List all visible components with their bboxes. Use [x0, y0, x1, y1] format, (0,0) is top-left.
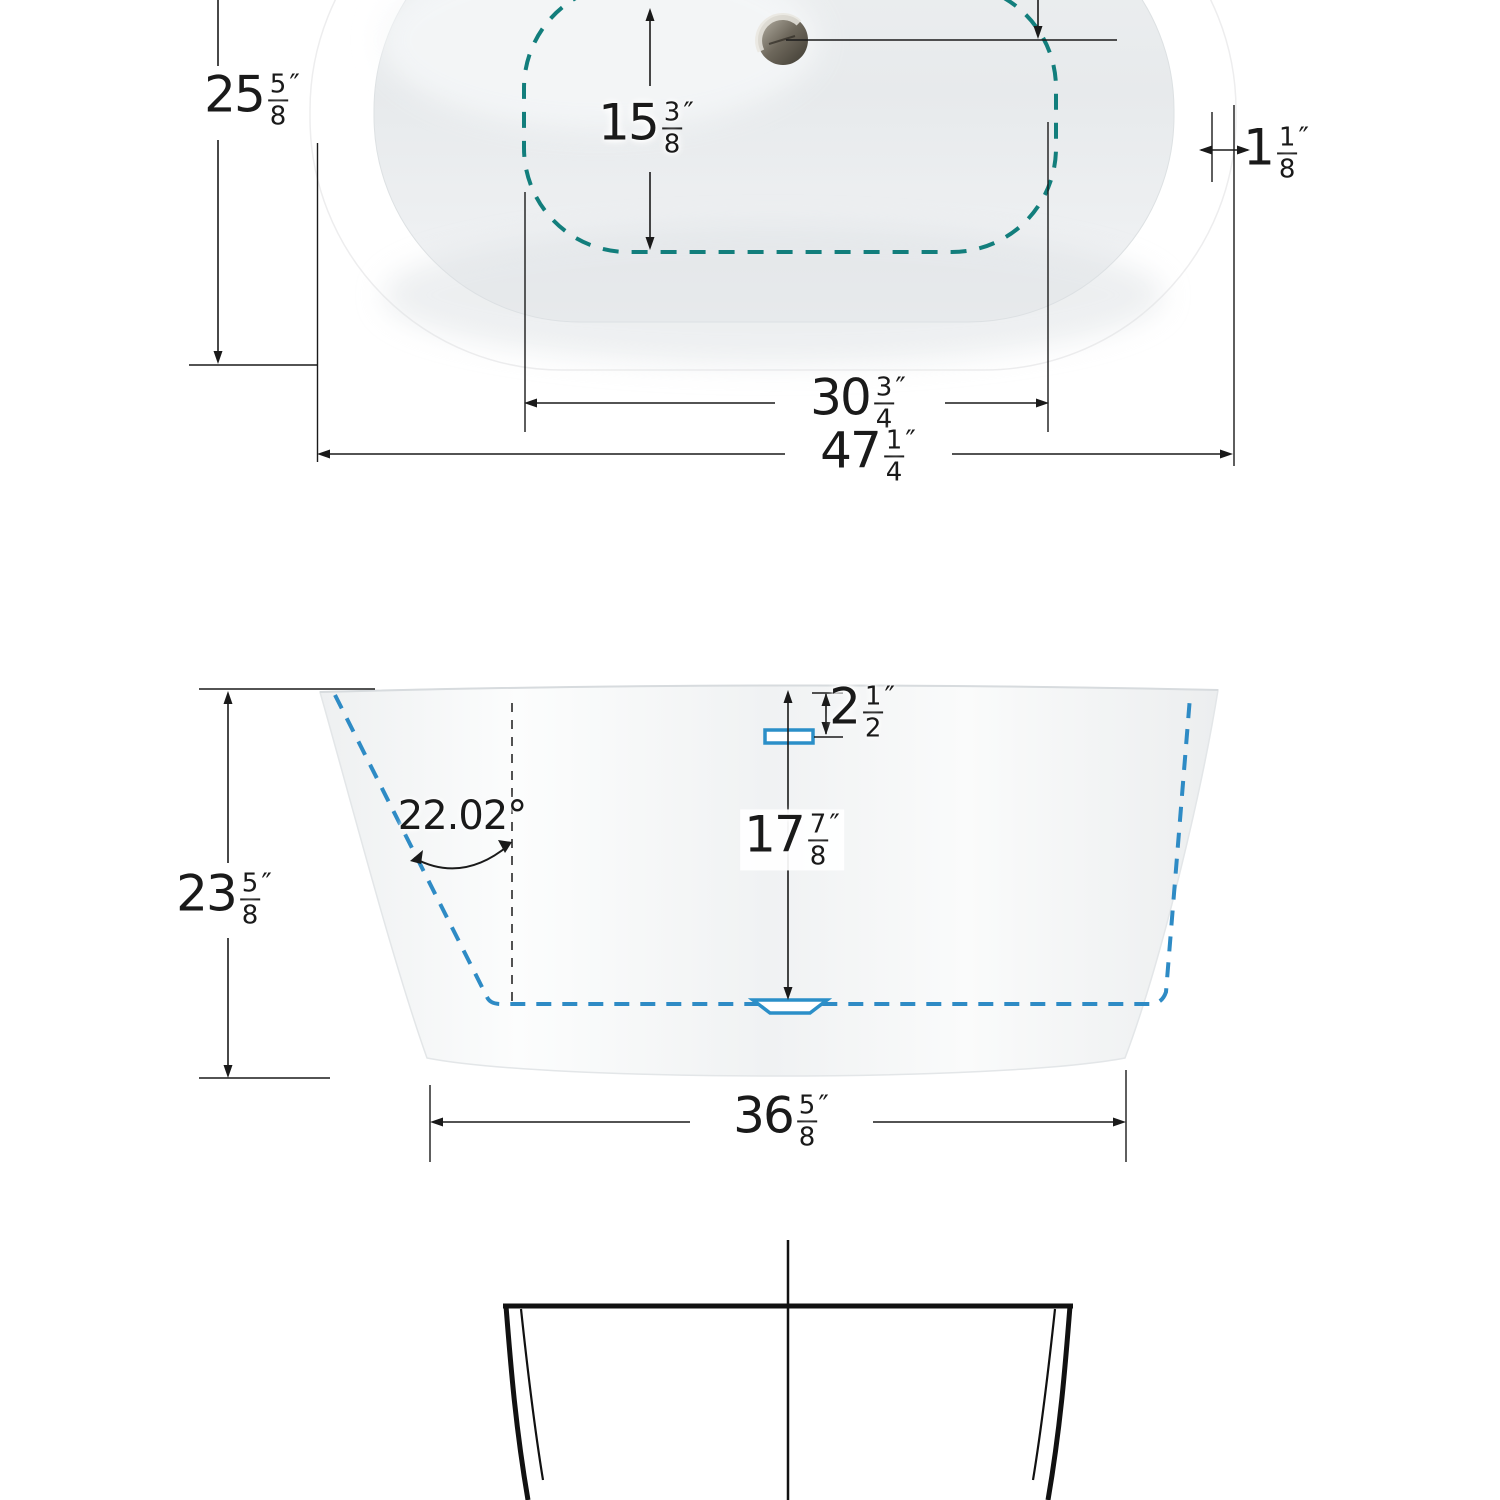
inch-mark: ″: [829, 810, 839, 838]
dim-fraction: 58: [240, 869, 261, 929]
dim-label-basin-width: 15 38 ″: [598, 97, 694, 158]
dim-whole: 23: [176, 868, 236, 918]
dim-whole: 25: [204, 69, 264, 119]
dim-fraction: 78: [808, 810, 829, 870]
dim-label-base-length: 36 58 ″: [733, 1090, 829, 1151]
inch-mark: ″: [683, 98, 693, 126]
arrowhead: [224, 691, 233, 704]
overflow-icon: [765, 730, 813, 743]
bathtub-dimension-diagram: 25 58 ″ 15 38 ″ 1 18 ″ 30 34 ″ 47 14 ″ 2…: [0, 0, 1500, 1500]
end-view-inner-left: [521, 1309, 543, 1480]
basin-shadow: [383, 225, 1163, 365]
dim-label-overall-length: 47 14 ″: [820, 425, 916, 486]
dim-fraction: 14: [884, 426, 905, 486]
dim-label-overall-width: 25 58 ″: [204, 69, 300, 130]
inch-mark: ″: [895, 373, 905, 401]
dim-fraction: 12: [863, 682, 884, 742]
inch-mark: ″: [289, 70, 299, 98]
arrowhead: [214, 351, 223, 364]
end-view-inner-right: [1033, 1309, 1055, 1480]
inch-mark: ″: [905, 426, 915, 454]
end-view-drawing: [0, 1240, 1500, 1500]
inch-mark: ″: [818, 1091, 828, 1119]
arrowhead: [317, 450, 330, 459]
arrowhead: [1036, 399, 1049, 408]
inch-mark: ″: [1298, 123, 1308, 151]
dim-label-interior-depth: 17 78 ″: [740, 809, 844, 870]
dim-whole: 36: [733, 1090, 793, 1140]
dim-whole: 17: [744, 809, 804, 859]
dim-fraction: 58: [268, 70, 289, 130]
inch-mark: ″: [261, 869, 271, 897]
dim-whole: 15: [598, 97, 658, 147]
inch-mark: ″: [884, 682, 894, 710]
dim-fraction: 18: [1277, 123, 1298, 183]
tub-front-view: [320, 685, 1218, 1076]
dim-whole: 30: [810, 372, 870, 422]
dim-label-wall-angle: 22.02°: [398, 793, 527, 839]
dim-label-overflow-drop: 2 12 ″: [829, 681, 895, 742]
dim-fraction: 38: [662, 98, 683, 158]
front-view-drawing: [0, 630, 1500, 1250]
arrowhead: [524, 399, 537, 408]
dim-whole: 1: [1243, 122, 1273, 172]
arrowhead: [1113, 1118, 1126, 1127]
dim-fraction: 58: [797, 1091, 818, 1151]
arrowhead: [224, 1065, 233, 1078]
arrowhead: [430, 1118, 443, 1127]
dim-label-overall-height: 23 58 ″: [176, 868, 272, 929]
dim-whole: 47: [820, 425, 880, 475]
arrowhead: [1220, 450, 1233, 459]
dim-whole: 2: [829, 681, 859, 731]
tub-top-view: [310, 0, 1236, 370]
dim-label-rim-thickness: 1 18 ″: [1243, 122, 1309, 183]
tub-end-view: [503, 1240, 1073, 1500]
